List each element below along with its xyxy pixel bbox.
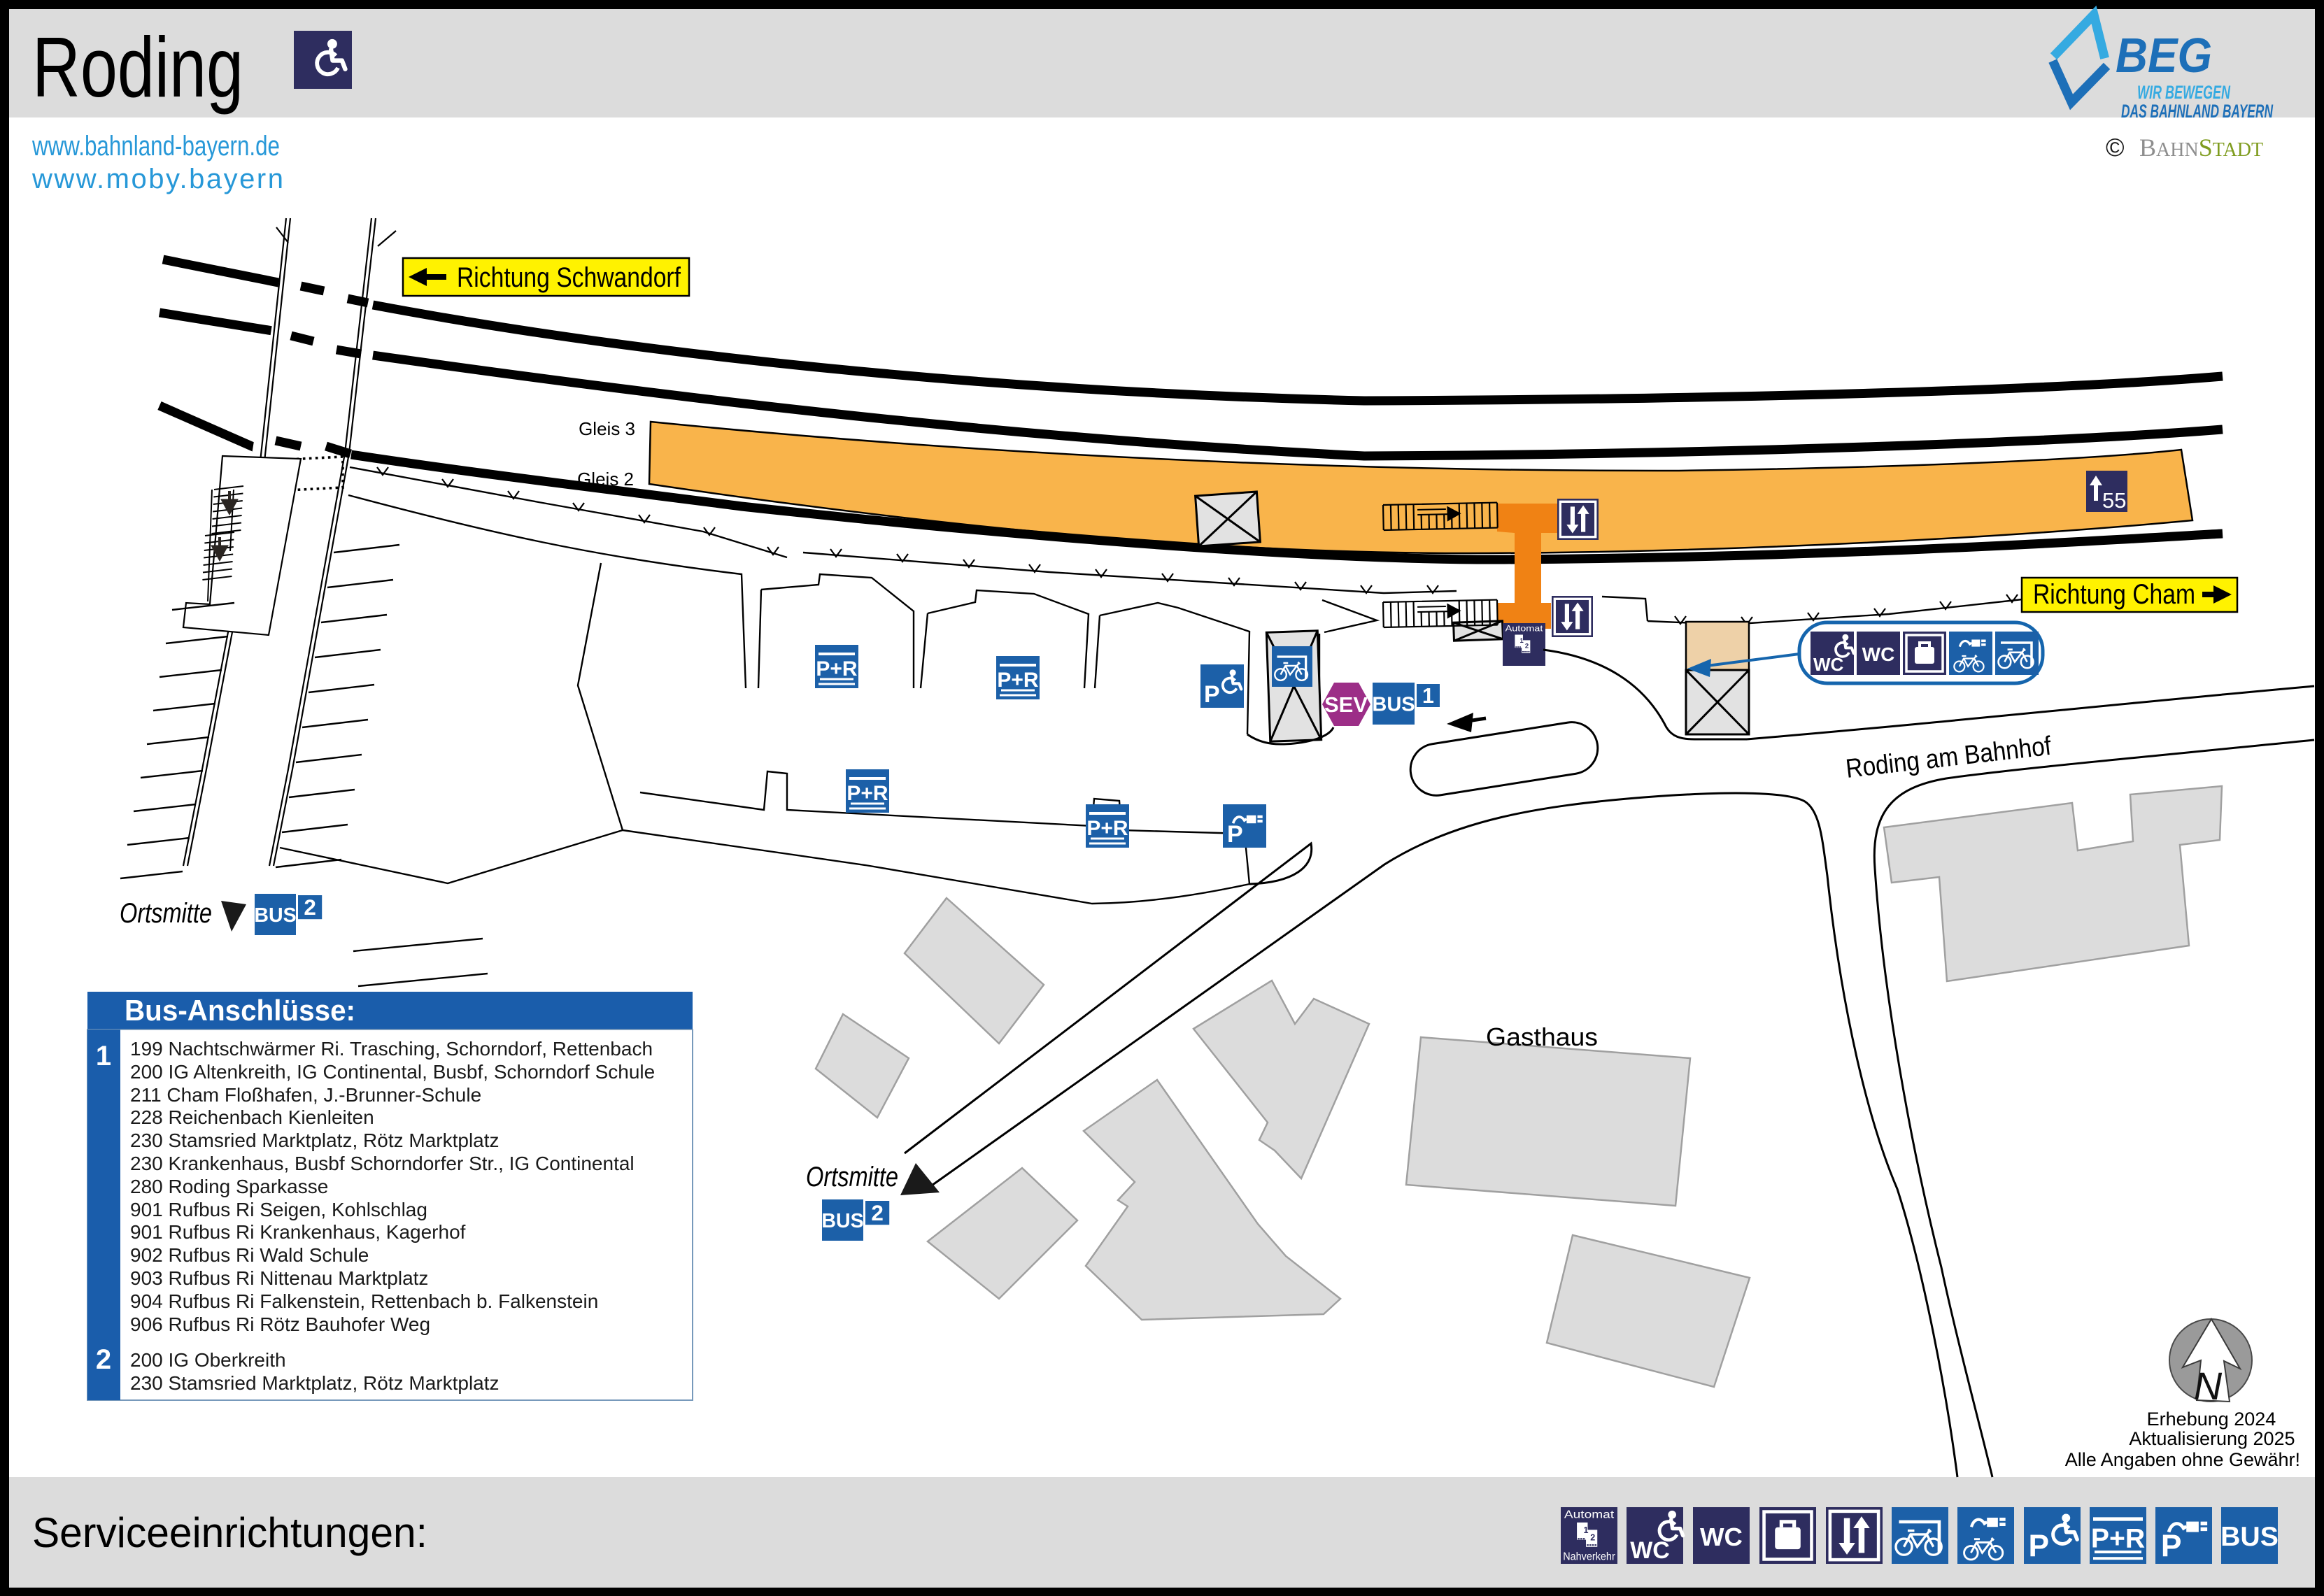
svg-text:211 Cham Floßhafen, J.-Brunner: 211 Cham Floßhafen, J.-Brunner-Schule: [130, 1084, 481, 1106]
svg-text:WC: WC: [1700, 1523, 1743, 1551]
svg-text:WIR BEWEGEN: WIR BEWEGEN: [2137, 82, 2230, 103]
svg-text:BUS: BUS: [2220, 1522, 2279, 1552]
svg-text:Ortsmitte: Ortsmitte: [806, 1162, 898, 1192]
svg-text:P+R: P+R: [846, 782, 888, 805]
svg-text:Gleis 2: Gleis 2: [577, 469, 634, 490]
svg-text:2: 2: [304, 895, 316, 920]
svg-text:BUS: BUS: [1372, 694, 1415, 716]
svg-text:©: ©: [2106, 133, 2125, 162]
svg-text:228 Reichenbach Kienleiten: 228 Reichenbach Kienleiten: [130, 1106, 374, 1128]
svg-text:1: 1: [1584, 1525, 1589, 1535]
svg-text:230 Stamsried Marktplatz, Rötz: 230 Stamsried Marktplatz, Rötz Marktplat…: [130, 1130, 499, 1151]
svg-text:P+R: P+R: [2091, 1523, 2145, 1553]
svg-text:P: P: [2161, 1530, 2182, 1564]
svg-text:Gleis 3: Gleis 3: [579, 418, 635, 439]
svg-text:WC: WC: [1862, 643, 1895, 665]
svg-text:BUS: BUS: [254, 904, 296, 927]
svg-text:901 Rufbus Ri Seigen, Kohlschl: 901 Rufbus Ri Seigen, Kohlschlag: [130, 1199, 427, 1220]
svg-text:Serviceeinrichtungen:: Serviceeinrichtungen:: [32, 1509, 427, 1556]
svg-text:902 Rufbus Ri Wald Schule: 902 Rufbus Ri Wald Schule: [130, 1244, 369, 1266]
svg-text:Erhebung 2024: Erhebung 2024: [2147, 1409, 2276, 1430]
svg-text:BEG: BEG: [2116, 28, 2212, 83]
svg-text:P: P: [1204, 681, 1220, 708]
svg-text:www.bahnland-bayern.de: www.bahnland-bayern.de: [31, 131, 280, 162]
svg-text:N: N: [2194, 1364, 2223, 1408]
svg-text:230 Krankenhaus, Busbf Schornd: 230 Krankenhaus, Busbf Schorndorfer Str.…: [130, 1153, 635, 1174]
svg-text:Richtung Schwandorf: Richtung Schwandorf: [457, 262, 681, 293]
svg-text:Automat: Automat: [1505, 625, 1544, 634]
svg-text:WC: WC: [1630, 1537, 1670, 1564]
svg-text:280 Roding Sparkasse: 280 Roding Sparkasse: [130, 1176, 328, 1197]
svg-text:55: 55: [2102, 488, 2126, 513]
svg-text:www.moby.bayern: www.moby.bayern: [31, 164, 283, 194]
svg-text:BUS: BUS: [821, 1210, 863, 1232]
svg-text:230 Stamsried Marktplatz, Rötz: 230 Stamsried Marktplatz, Rötz Marktplat…: [130, 1372, 499, 1394]
svg-text:904 Rufbus Ri Falkenstein, Ret: 904 Rufbus Ri Falkenstein, Rettenbach b.…: [130, 1290, 598, 1312]
svg-text:200 IG Altenkreith, IG Contine: 200 IG Altenkreith, IG Continental, Busb…: [130, 1061, 655, 1083]
svg-text:1: 1: [1422, 685, 1434, 708]
svg-text:Bus-Anschlüsse:: Bus-Anschlüsse:: [125, 994, 355, 1027]
svg-text:2: 2: [871, 1201, 884, 1225]
svg-text:1: 1: [96, 1041, 111, 1071]
svg-text:P: P: [2029, 1530, 2050, 1564]
svg-text:Ortsmitte: Ortsmitte: [120, 898, 212, 929]
svg-text:Automat: Automat: [1564, 1509, 1615, 1520]
svg-text:DAS BAHNLAND BAYERN: DAS BAHNLAND BAYERN: [2121, 101, 2273, 122]
svg-text:Gasthaus: Gasthaus: [1486, 1023, 1598, 1051]
svg-text:P+R: P+R: [1086, 817, 1128, 840]
svg-text:P+R: P+R: [997, 669, 1039, 692]
svg-text:903 Rufbus Ri Nittenau Marktpl: 903 Rufbus Ri Nittenau Marktplatz: [130, 1267, 428, 1289]
svg-text:200 IG Oberkreith: 200 IG Oberkreith: [130, 1349, 286, 1371]
svg-text:P: P: [1227, 821, 1243, 848]
svg-text:Aktualisierung 2025: Aktualisierung 2025: [2129, 1428, 2295, 1449]
svg-text:Alle Angaben ohne Gewähr!: Alle Angaben ohne Gewähr!: [2065, 1449, 2300, 1470]
svg-text:2: 2: [1525, 643, 1529, 650]
svg-text:901 Rufbus Ri Krankenhaus, Kag: 901 Rufbus Ri Krankenhaus, Kagerhof: [130, 1221, 466, 1243]
svg-text:Roding: Roding: [32, 20, 243, 115]
svg-text:P+R: P+R: [816, 657, 858, 681]
svg-text:SEV: SEV: [1324, 692, 1368, 717]
svg-text:906 Rufbus Ri Rötz Bauhofer We: 906 Rufbus Ri Rötz Bauhofer Weg: [130, 1313, 430, 1335]
svg-text:1: 1: [1520, 637, 1524, 645]
svg-text:Richtung Cham: Richtung Cham: [2033, 579, 2195, 610]
svg-text:2: 2: [1590, 1532, 1595, 1542]
svg-text:2: 2: [96, 1344, 111, 1375]
svg-text:199 Nachtschwärmer Ri. Traschi: 199 Nachtschwärmer Ri. Trasching, Schorn…: [130, 1038, 653, 1060]
svg-text:Nahverkehr: Nahverkehr: [1563, 1551, 1615, 1562]
